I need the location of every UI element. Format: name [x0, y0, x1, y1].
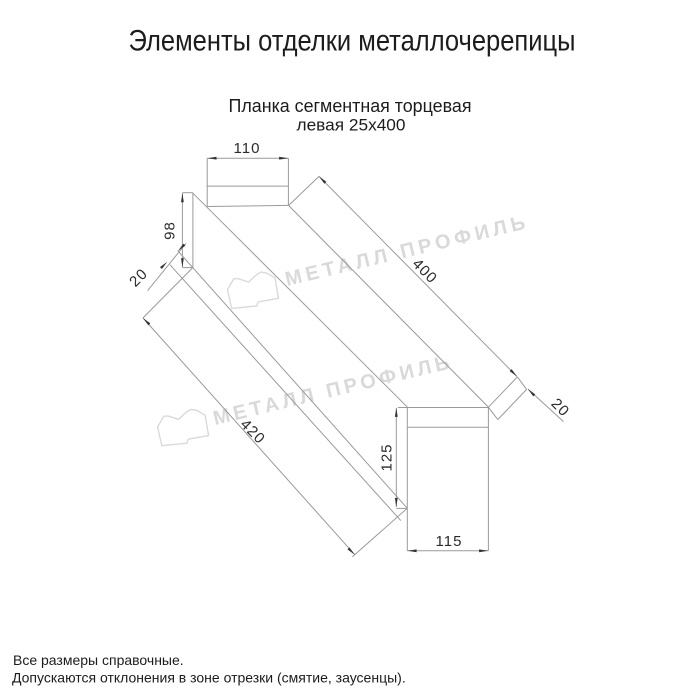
svg-text:Все размеры справочные.: Все размеры справочные.: [13, 652, 184, 668]
svg-text:Планка сегментная торцевая: Планка сегментная торцевая: [229, 96, 472, 116]
svg-text:Допускаются отклонения в зоне: Допускаются отклонения в зоне отрезки (с…: [12, 670, 406, 686]
svg-text:левая 25х400: левая 25х400: [297, 115, 406, 134]
svg-text:Элементы отделки металлочерепи: Элементы отделки металлочерепицы: [129, 25, 576, 58]
svg-text:110: 110: [234, 140, 261, 157]
svg-text:125: 125: [379, 443, 396, 471]
svg-text:115: 115: [436, 533, 463, 550]
svg-text:98: 98: [162, 221, 179, 240]
